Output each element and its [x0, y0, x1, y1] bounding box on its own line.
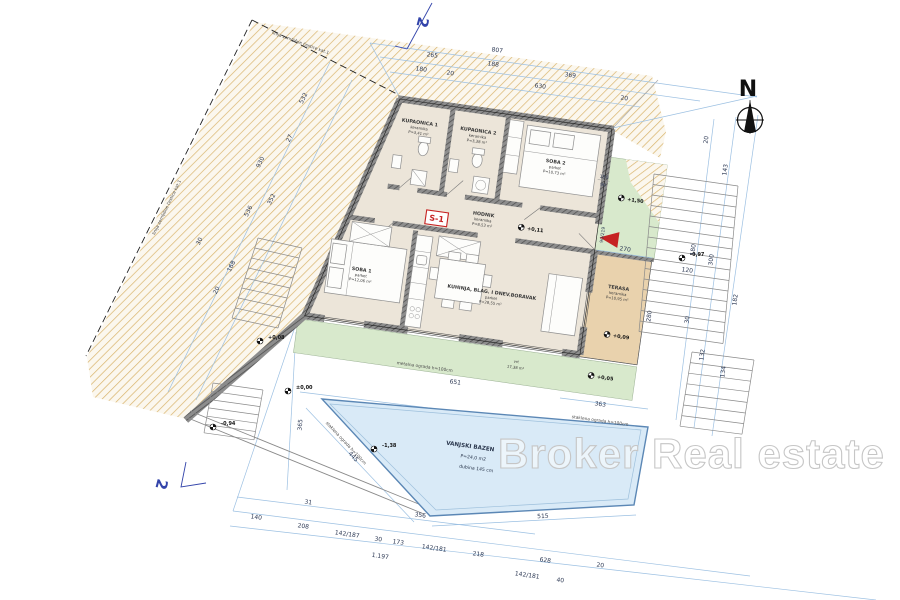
dim-bot-31: 31	[304, 499, 313, 507]
dim-top-20b: 20	[620, 95, 629, 103]
dim-bot-40: 40	[556, 577, 565, 585]
level-marker-pool	[371, 446, 377, 452]
north-label: N	[739, 77, 757, 102]
level-entry: ±0,00	[296, 385, 313, 391]
dim-garden-90: 90	[600, 182, 607, 189]
dim-bot-30: 30	[374, 536, 383, 544]
dim-site-365: 365	[297, 419, 305, 431]
north-needle-icon	[744, 100, 756, 132]
dim-top-20a: 20	[446, 70, 455, 78]
watermark: Broker Real estate	[498, 430, 885, 477]
dim-site-363: 363	[594, 400, 606, 409]
level-marker-lower-left	[210, 424, 216, 430]
stairs-right-lower	[680, 352, 754, 434]
floorplan-drawing: linija zemljišne čestice kat.1 linija ze…	[0, 0, 900, 600]
dim-bot-142-181a: 142/181	[421, 543, 447, 553]
dim-right-132: 132	[698, 349, 706, 361]
dim-bot-1197: 1.197	[371, 552, 389, 561]
dim-bot-208: 208	[297, 522, 309, 531]
dim-right-180: 180	[689, 244, 697, 256]
section-marker-bottom: 2	[151, 462, 206, 492]
section-label-bottom: 2	[151, 477, 171, 492]
dim-top-807: 807	[491, 46, 503, 55]
unit-tag: S-1	[425, 210, 449, 227]
dim-bot-140: 140	[250, 513, 262, 522]
north-arrow: N	[736, 77, 764, 134]
dim-bot-142-181b: 142/181	[514, 570, 540, 580]
dim-site-515: 515	[537, 513, 549, 521]
dim-bot-20: 20	[596, 562, 605, 570]
floorplan-canvas: linija zemljišne čestice kat.1 linija ze…	[0, 0, 900, 600]
dim-bot-628: 628	[539, 556, 551, 565]
dim-right-300: 300	[707, 254, 715, 266]
dim-bot-356: 356	[414, 511, 426, 520]
level-pool: -1,38	[382, 443, 397, 449]
dim-right-182: 182	[731, 294, 739, 306]
level-path-left: +0,08	[268, 335, 285, 341]
level-marker-entry	[285, 388, 291, 394]
dim-right-134: 134	[719, 366, 727, 378]
dim-bot-173: 173	[392, 538, 404, 547]
dim-bot-218: 218	[472, 550, 484, 559]
section-label-top: 2	[412, 15, 432, 30]
dim-right-143: 143	[721, 164, 729, 176]
level-marker-stairs-right	[679, 255, 685, 261]
level-marker-path-left	[257, 338, 263, 344]
dim-right-20: 20	[703, 135, 711, 144]
level-lower-left: -0,94	[221, 421, 236, 427]
dim-right-30: 30	[684, 315, 692, 324]
dim-site-651: 651	[449, 378, 461, 387]
dim-terrace-120: 120	[681, 266, 693, 275]
stairs-bottom-left	[204, 383, 263, 440]
